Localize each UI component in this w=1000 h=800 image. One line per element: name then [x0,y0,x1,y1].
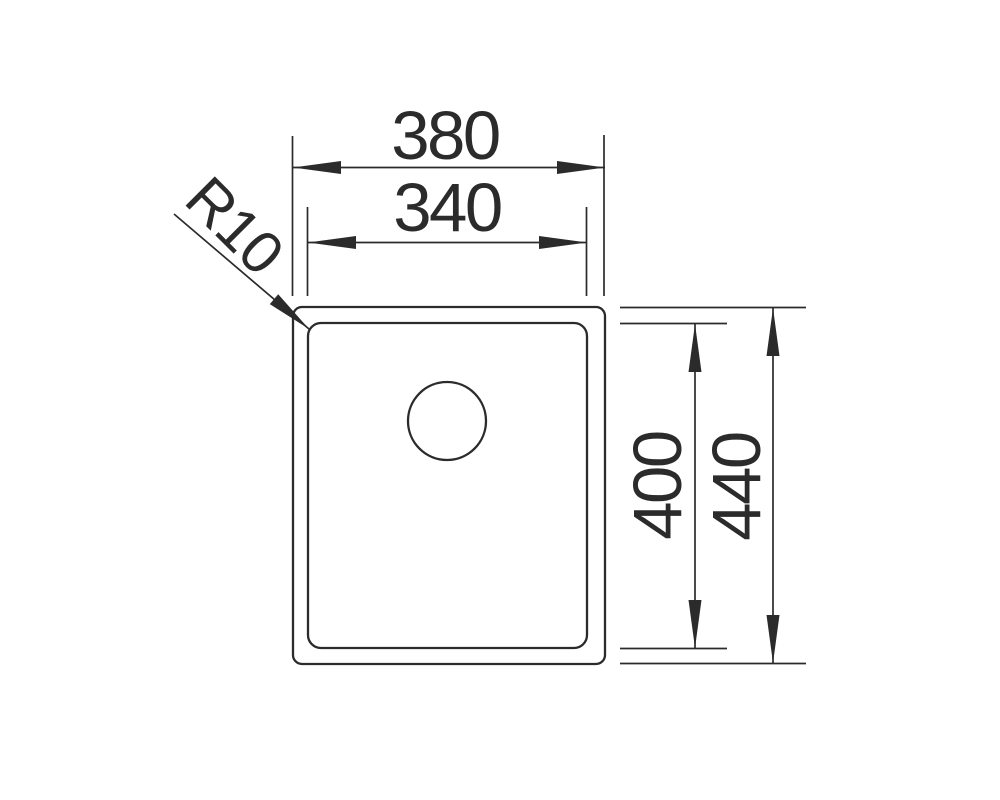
arrowhead-left [293,161,341,174]
dim-label-outer-height: 440 [698,433,775,541]
arrowhead-right [557,161,605,174]
sink-dimension-drawing: 380 340 400 440 R10 [0,0,1000,800]
arrowhead-left [308,236,356,249]
sink-bowl-edge [308,323,587,648]
dim-label-outer-width: 380 [391,97,499,174]
arrowhead-bottom [767,615,780,663]
arrowhead-right [539,236,587,249]
dim-inner-width: 340 [308,169,588,296]
sink-outline [293,307,605,664]
dim-label-inner-height: 400 [619,432,696,540]
arrowhead-top [689,324,702,372]
arrowhead-leader [270,294,309,329]
drain-hole [408,382,486,460]
sink-outer-edge [293,307,605,664]
arrowhead-bottom [689,600,702,648]
dim-label-inner-width: 340 [393,169,501,246]
arrowhead-top [767,308,780,356]
radius-callout: R10 [173,164,309,329]
dim-label-corner-radius: R10 [173,164,296,287]
